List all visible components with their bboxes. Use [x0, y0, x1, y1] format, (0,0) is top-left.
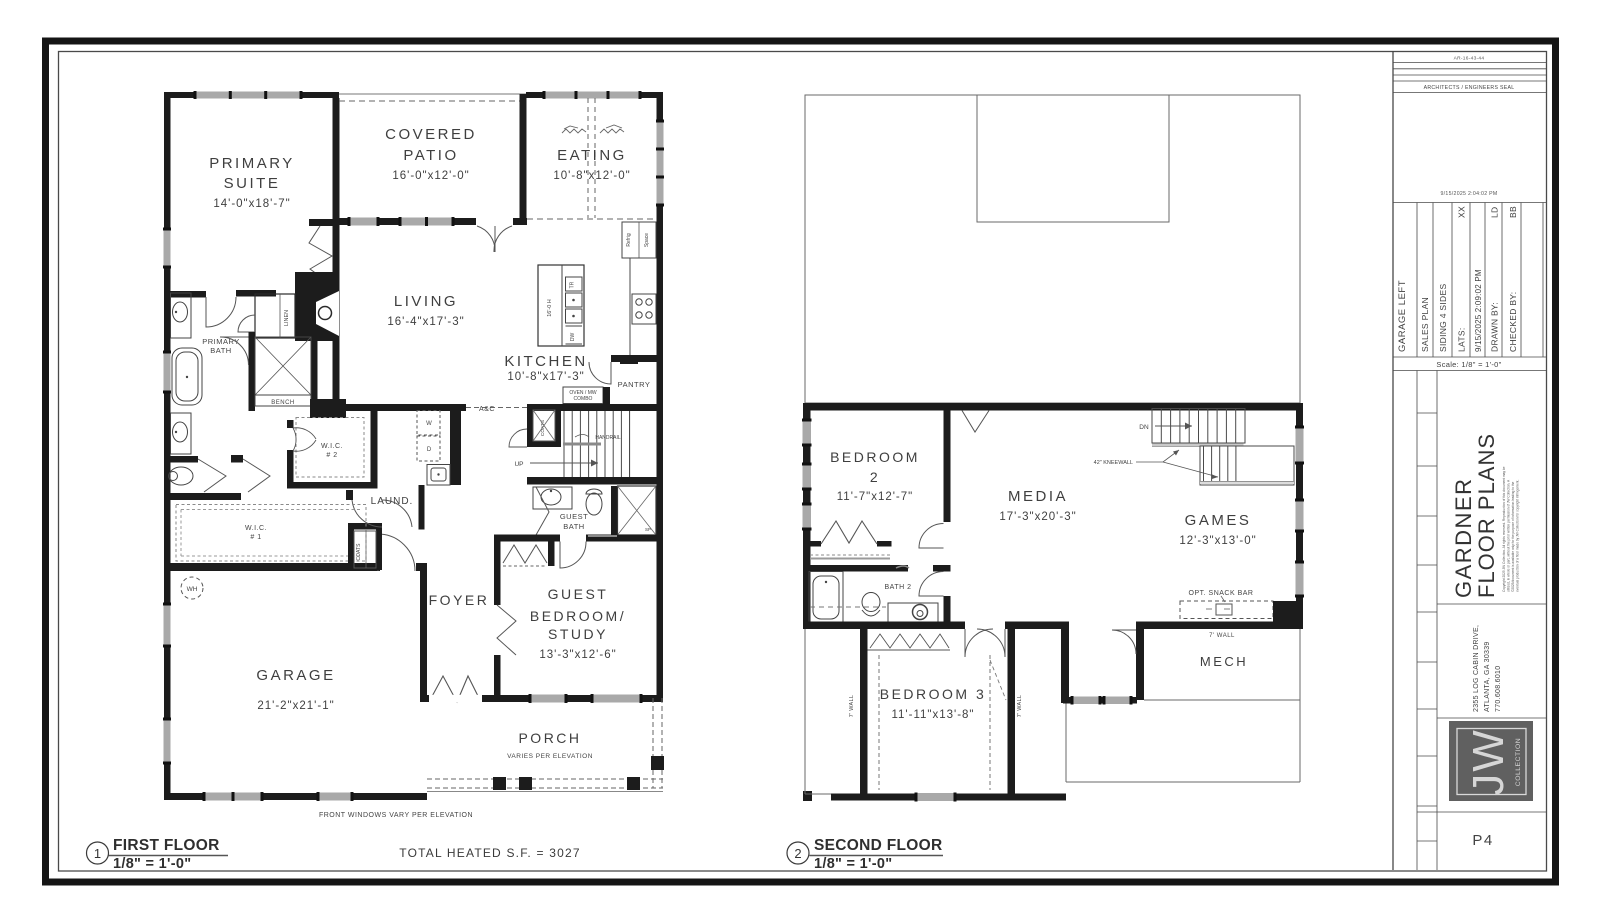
svg-text:FIRST FLOOR: FIRST FLOOR	[113, 837, 220, 854]
svg-text:1: 1	[94, 846, 101, 861]
svg-text:PORCH: PORCH	[518, 730, 581, 746]
svg-text:BEDROOM/: BEDROOM/	[530, 608, 626, 624]
svg-text:BATH: BATH	[563, 522, 584, 531]
svg-text:PRIMARY: PRIMARY	[209, 155, 295, 172]
svg-text:7' WALL: 7' WALL	[1017, 695, 1023, 718]
svg-text:BB: BB	[1508, 206, 1518, 218]
svg-text:COMBO: COMBO	[574, 396, 593, 402]
svg-text:13'-3"x12'-6": 13'-3"x12'-6"	[539, 649, 616, 661]
svg-text:AR-16-43-44: AR-16-43-44	[1454, 56, 1485, 62]
svg-text:DRAWN BY:: DRAWN BY:	[1490, 302, 1500, 352]
svg-text:11'-7"x12'-7": 11'-7"x12'-7"	[837, 491, 914, 503]
svg-text:2355 LOG CABIN DRIVE,: 2355 LOG CABIN DRIVE,	[1473, 625, 1480, 712]
svg-text:BENCH: BENCH	[271, 400, 295, 406]
svg-text:1/8" = 1'-0": 1/8" = 1'-0"	[814, 856, 892, 872]
svg-text:PRIMARY: PRIMARY	[202, 337, 240, 346]
svg-text:21'-2"x21'-1": 21'-2"x21'-1"	[257, 700, 334, 712]
svg-text:HANDRAIL: HANDRAIL	[595, 435, 621, 441]
svg-text:PATIO: PATIO	[403, 147, 458, 164]
svg-text:FOYER: FOYER	[429, 592, 490, 608]
svg-text:17'-3"x20'-3": 17'-3"x20'-3"	[999, 511, 1076, 523]
svg-text:# 2: # 2	[326, 452, 337, 459]
svg-text:WH: WH	[187, 586, 198, 593]
svg-text:COLLECTION: COLLECTION	[1515, 738, 1522, 786]
svg-text:SIDING 4 SIDES: SIDING 4 SIDES	[1438, 284, 1448, 352]
svg-text:SECOND FLOOR: SECOND FLOOR	[814, 837, 942, 854]
svg-text:BATH 2: BATH 2	[885, 584, 912, 591]
svg-text:PANTRY: PANTRY	[618, 380, 651, 389]
svg-text:10'-8"x12'-0": 10'-8"x12'-0"	[553, 170, 630, 182]
svg-text:GARDNER: GARDNER	[1451, 477, 1476, 598]
svg-text:TOTAL HEATED S.F. = 3027: TOTAL HEATED S.F. = 3027	[399, 846, 580, 860]
svg-text:LAUND.: LAUND.	[371, 496, 414, 507]
svg-text:2: 2	[794, 846, 801, 861]
svg-text:14'-0"x18'-7": 14'-0"x18'-7"	[213, 198, 290, 210]
svg-text:LATS:: LATS:	[1457, 328, 1467, 353]
svg-text:D: D	[427, 447, 432, 453]
svg-text:COATS: COATS	[356, 543, 362, 561]
svg-text:770.608.6010: 770.608.6010	[1495, 666, 1502, 712]
svg-text:MEDIA: MEDIA	[1008, 488, 1068, 505]
svg-text:2: 2	[870, 469, 880, 485]
svg-text:42" KNEEWALL: 42" KNEEWALL	[1094, 460, 1133, 466]
svg-text:TR: TR	[570, 281, 576, 288]
svg-text:# 1: # 1	[250, 534, 261, 541]
svg-text:GUEST: GUEST	[560, 512, 588, 521]
svg-text:MECH: MECH	[1200, 654, 1248, 669]
svg-text:16'-0 H: 16'-0 H	[547, 299, 553, 317]
svg-text:Space: Space	[644, 233, 650, 247]
svg-text:BEDROOM: BEDROOM	[830, 449, 920, 465]
svg-text:JW: JW	[1464, 728, 1513, 796]
svg-text:SALES PLAN: SALES PLAN	[1420, 297, 1430, 352]
svg-text:A&C: A&C	[479, 406, 495, 413]
svg-text:EATING: EATING	[557, 147, 627, 164]
svg-text:GARAGE LEFT: GARAGE LEFT	[1397, 280, 1408, 352]
svg-text:utilized, in whole or part, wi: utilized, in whole or part, without the …	[1507, 479, 1511, 592]
svg-text:16'-4"x17'-3": 16'-4"x17'-3"	[387, 316, 464, 328]
svg-text:7' WALL: 7' WALL	[1209, 633, 1235, 639]
svg-text:BEDROOM 3: BEDROOM 3	[880, 686, 987, 702]
svg-text:W.I.C.: W.I.C.	[245, 525, 267, 532]
svg-text:W: W	[426, 421, 432, 427]
svg-text:ATLANTA, GA 30339: ATLANTA, GA 30339	[1484, 641, 1491, 712]
svg-text:Scale: 1/8" = 1'-0": Scale: 1/8" = 1'-0"	[1436, 360, 1501, 369]
svg-text:9/15/2025 2:09:02 PM: 9/15/2025 2:09:02 PM	[1474, 269, 1483, 352]
svg-text:12'-3"x13'-0": 12'-3"x13'-0"	[1179, 535, 1256, 547]
svg-text:9/15/2025 2:04:02 PM: 9/15/2025 2:04:02 PM	[1440, 191, 1497, 197]
svg-text:LD: LD	[1490, 207, 1500, 218]
svg-text:10'-8"x17'-3": 10'-8"x17'-3"	[507, 371, 584, 383]
svg-text:OPT. SNACK BAR: OPT. SNACK BAR	[1189, 590, 1254, 597]
svg-text:COATS: COATS	[540, 420, 546, 436]
svg-text:GARAGE: GARAGE	[256, 667, 335, 684]
svg-text:©2025/document is available on: ©2025/document is available only for the…	[1511, 482, 1515, 592]
svg-text:LINEN: LINEN	[284, 310, 290, 326]
svg-text:Copyright 2025 JW Collection.: Copyright 2025 JW Collection. All rights…	[1502, 466, 1506, 592]
svg-text:GAMES: GAMES	[1185, 512, 1252, 529]
svg-text:UP: UP	[514, 461, 523, 468]
svg-text:DN: DN	[1139, 424, 1149, 431]
svg-text:BATH: BATH	[210, 346, 231, 355]
svg-text:eventual production of a floor: eventual production of a floor made by J…	[1516, 480, 1520, 592]
svg-text:1/8" = 1'-0": 1/8" = 1'-0"	[113, 856, 191, 872]
svg-text:STUDY: STUDY	[548, 626, 608, 642]
svg-text:SP: SP	[645, 527, 651, 532]
svg-text:DW: DW	[570, 333, 576, 342]
svg-text:W.I.C.: W.I.C.	[321, 443, 343, 450]
svg-text:Refrig: Refrig	[626, 233, 632, 247]
svg-text:FRONT WINDOWS VARY PER ELEVATI: FRONT WINDOWS VARY PER ELEVATION	[319, 812, 473, 819]
svg-text:XX: XX	[1457, 206, 1467, 218]
svg-text:GUEST: GUEST	[548, 586, 609, 602]
svg-text:SUITE: SUITE	[224, 175, 281, 192]
svg-text:KITCHEN: KITCHEN	[504, 353, 587, 370]
svg-text:ARCHITECTS / ENGINEERS SEAL: ARCHITECTS / ENGINEERS SEAL	[1424, 85, 1515, 91]
svg-text:CHECKED BY:: CHECKED BY:	[1508, 292, 1518, 352]
svg-text:COVERED: COVERED	[385, 126, 477, 143]
svg-text:P4: P4	[1472, 832, 1493, 849]
svg-text:7' WALL: 7' WALL	[849, 695, 855, 718]
svg-text:16'-0"x12'-0": 16'-0"x12'-0"	[392, 170, 469, 182]
svg-text:FLOOR PLANS: FLOOR PLANS	[1474, 433, 1499, 598]
svg-text:11'-11"x13'-8": 11'-11"x13'-8"	[891, 709, 974, 721]
svg-text:VARIES PER ELEVATION: VARIES PER ELEVATION	[507, 753, 593, 760]
svg-text:LIVING: LIVING	[394, 293, 458, 310]
